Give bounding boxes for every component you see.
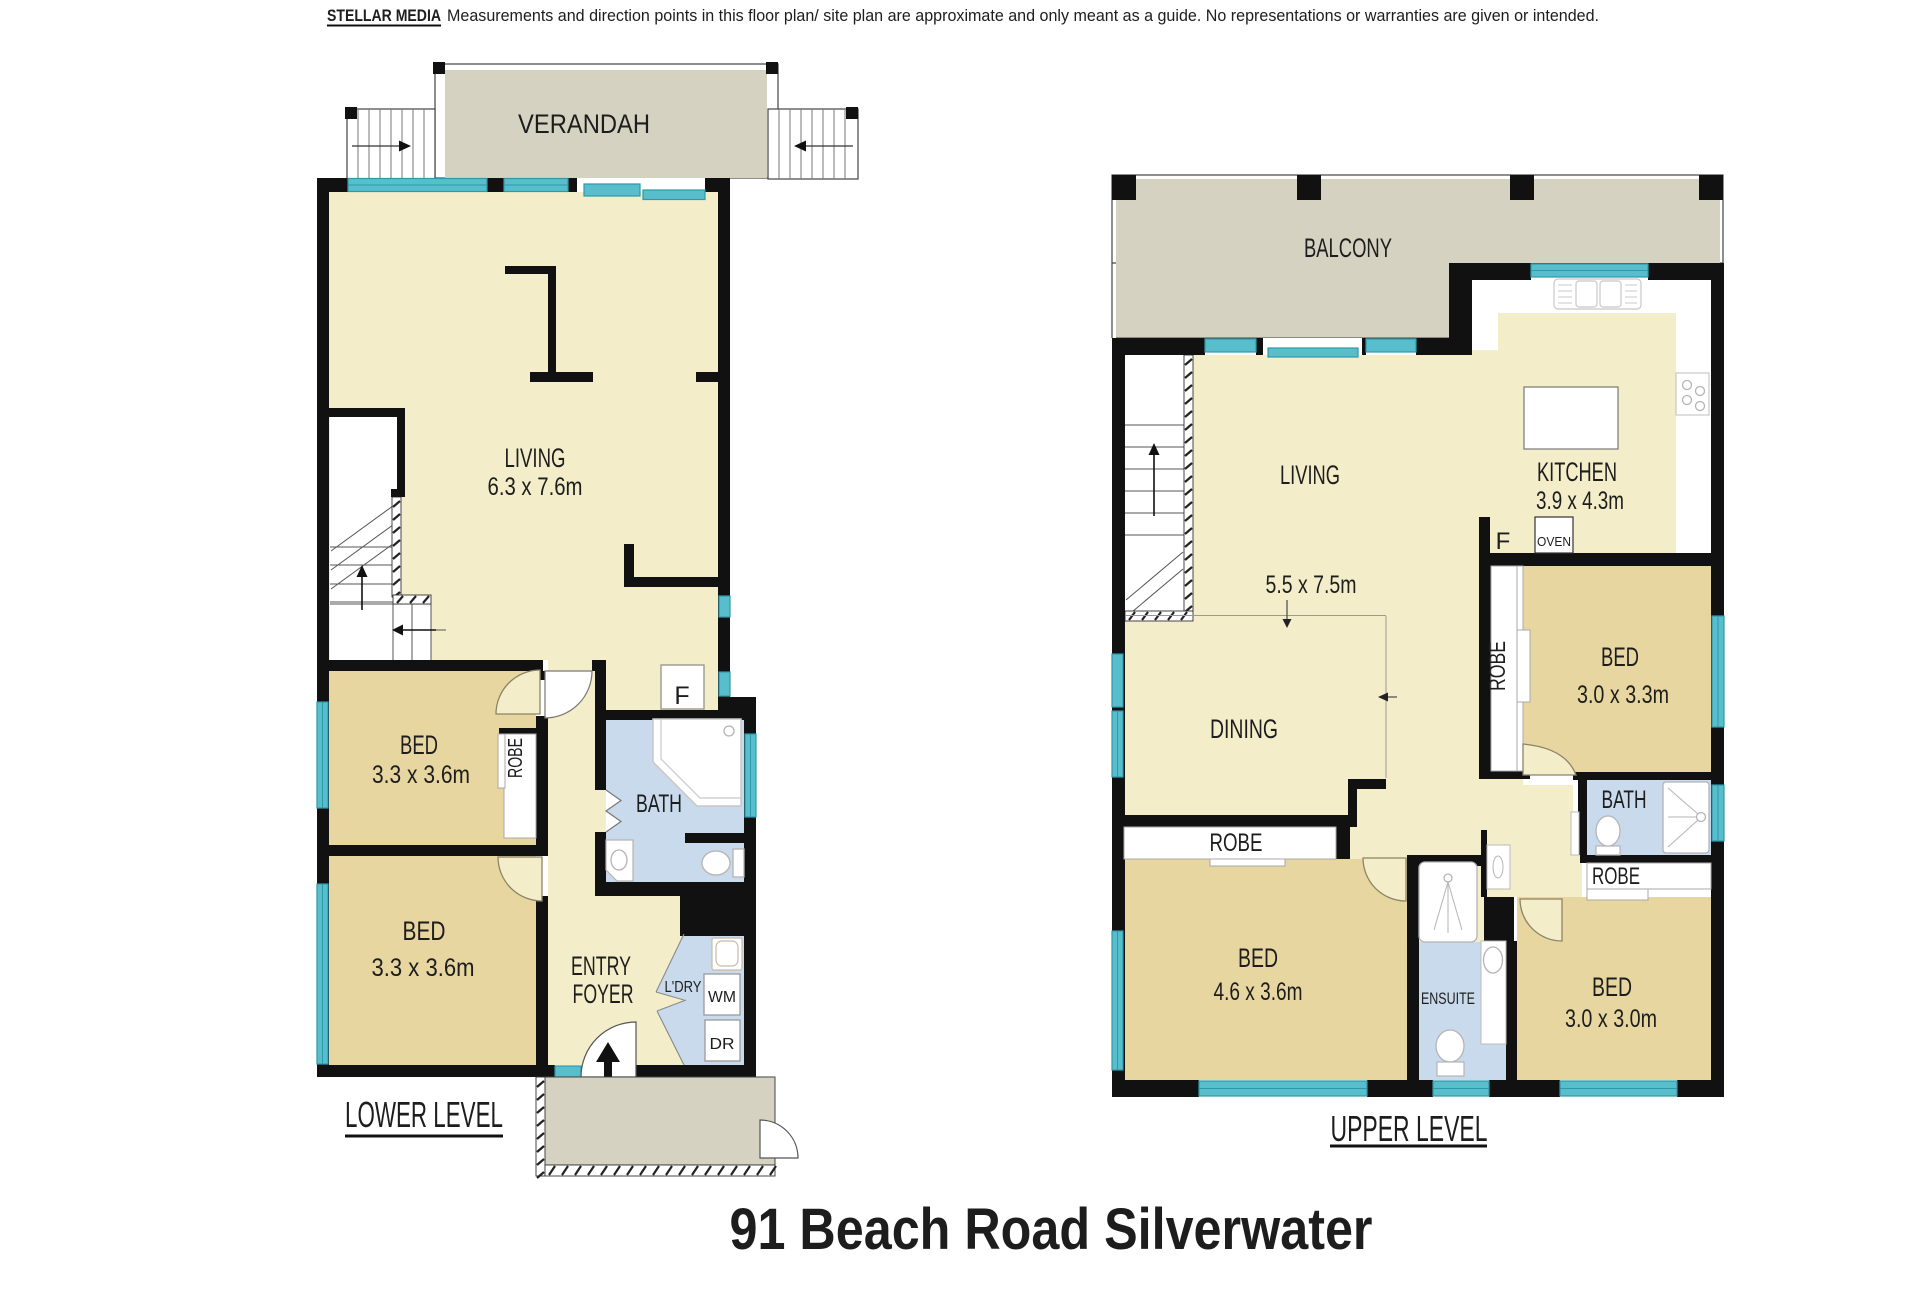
svg-text:ENSUITE: ENSUITE <box>1421 989 1475 1008</box>
svg-text:UPPER LEVEL: UPPER LEVEL <box>1331 1108 1488 1149</box>
svg-text:OVEN: OVEN <box>1537 534 1571 549</box>
svg-text:F: F <box>674 682 689 710</box>
svg-text:BED: BED <box>400 730 438 760</box>
svg-text:ROBE: ROBE <box>505 738 527 778</box>
svg-text:BED: BED <box>1238 943 1278 973</box>
svg-text:BALCONY: BALCONY <box>1304 233 1392 263</box>
svg-text:6.3 x 7.6m: 6.3 x 7.6m <box>488 473 583 501</box>
svg-text:Measurements and direction poi: Measurements and direction points in thi… <box>447 7 1599 25</box>
svg-text:BED: BED <box>403 916 446 946</box>
svg-text:BED: BED <box>1592 972 1632 1002</box>
svg-text:91 Beach Road Silverwater: 91 Beach Road Silverwater <box>730 1197 1373 1262</box>
svg-text:LIVING: LIVING <box>1280 460 1340 490</box>
svg-text:3.9 x 4.3m: 3.9 x 4.3m <box>1536 487 1624 515</box>
svg-text:BATH: BATH <box>1602 786 1647 814</box>
svg-text:LIVING: LIVING <box>505 443 566 473</box>
svg-text:L'DRY: L'DRY <box>665 979 702 996</box>
svg-text:3.3 x 3.6m: 3.3 x 3.6m <box>372 954 475 982</box>
svg-text:DR: DR <box>710 1036 735 1053</box>
svg-text:ROBE: ROBE <box>1484 641 1510 691</box>
svg-text:3.3 x 3.6m: 3.3 x 3.6m <box>372 761 470 789</box>
svg-text:STELLAR MEDIA: STELLAR MEDIA <box>327 6 441 25</box>
svg-text:ROBE: ROBE <box>1210 829 1263 857</box>
svg-text:FOYER: FOYER <box>573 979 634 1009</box>
svg-text:4.6 x 3.6m: 4.6 x 3.6m <box>1214 978 1303 1006</box>
svg-text:BED: BED <box>1601 642 1639 672</box>
svg-text:ENTRY: ENTRY <box>571 951 631 981</box>
svg-text:LOWER LEVEL: LOWER LEVEL <box>345 1094 503 1135</box>
svg-text:F: F <box>1496 528 1511 555</box>
svg-text:ROBE: ROBE <box>1592 863 1640 890</box>
svg-text:WM: WM <box>708 989 736 1006</box>
svg-text:5.5 x 7.5m: 5.5 x 7.5m <box>1266 571 1357 599</box>
svg-text:BATH: BATH <box>636 790 682 818</box>
svg-text:KITCHEN: KITCHEN <box>1537 457 1617 487</box>
svg-text:3.0 x 3.3m: 3.0 x 3.3m <box>1577 681 1669 709</box>
svg-text:VERANDAH: VERANDAH <box>518 109 650 139</box>
svg-text:DINING: DINING <box>1210 714 1278 744</box>
svg-text:3.0 x 3.0m: 3.0 x 3.0m <box>1565 1005 1657 1033</box>
